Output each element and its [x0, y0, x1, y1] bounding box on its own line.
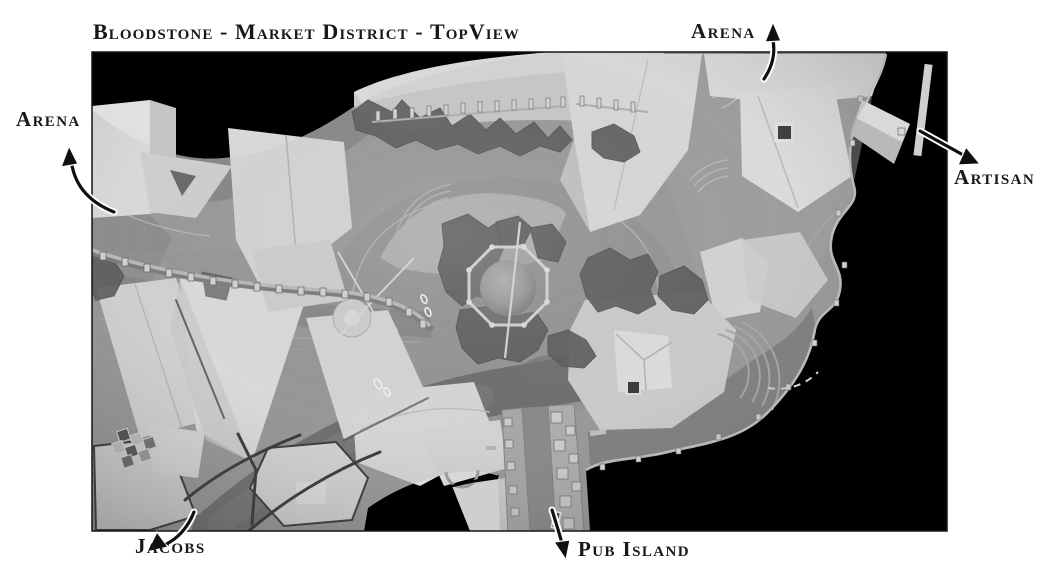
label-pub-island: Pub Island [578, 539, 690, 560]
level-map-figure: Bloodstone - Market District - TopView A… [0, 0, 1040, 584]
label-jacobs: Jacobs [135, 536, 206, 557]
map-render [0, 0, 1040, 584]
label-arena-top: Arena [691, 21, 756, 42]
map-title: Bloodstone - Market District - TopView [93, 21, 520, 43]
label-artisan: Artisan [954, 167, 1035, 188]
label-arena-left: Arena [16, 109, 81, 130]
page: { "title": "Bloodstone - Market District… [0, 0, 1040, 584]
